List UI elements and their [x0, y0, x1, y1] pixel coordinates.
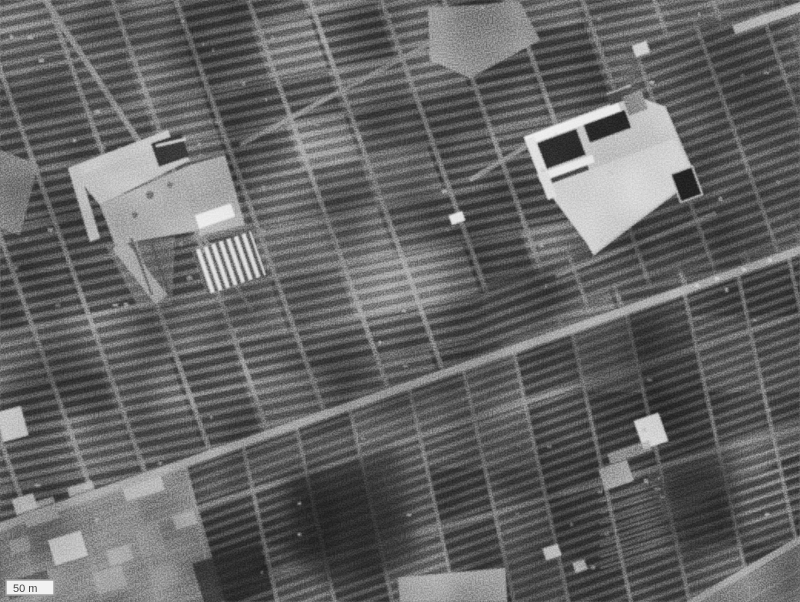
- svg-text:50 m: 50 m: [13, 583, 37, 595]
